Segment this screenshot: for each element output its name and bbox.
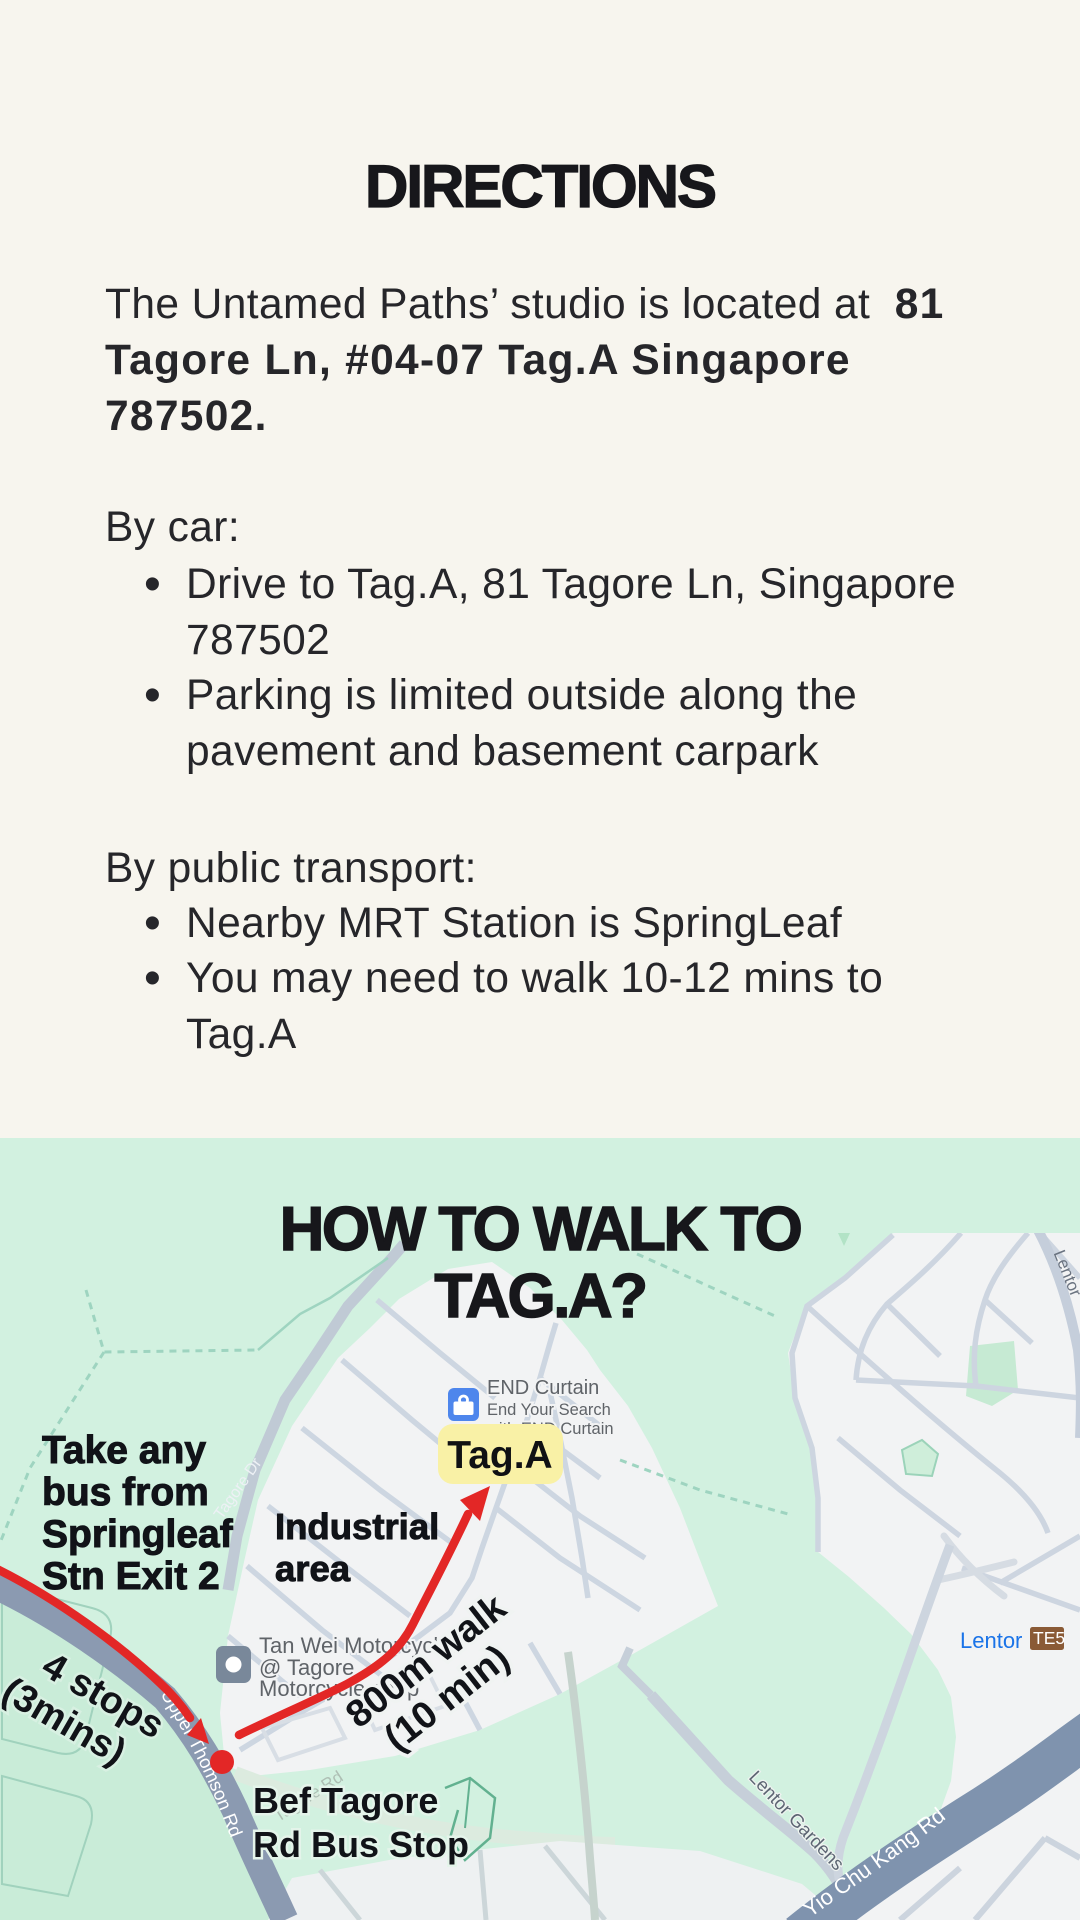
svg-text:Springleaf: Springleaf [42, 1513, 234, 1556]
svg-text:END Curtain: END Curtain [487, 1377, 599, 1399]
svg-text:End Your Search: End Your Search [487, 1401, 611, 1419]
svg-text:TAG.A?: TAG.A? [434, 1262, 645, 1331]
svg-text:bus from: bus from [42, 1471, 209, 1514]
svg-text:Stn Exit 2: Stn Exit 2 [42, 1555, 220, 1598]
svg-text:Bef Tagore: Bef Tagore [253, 1780, 438, 1821]
svg-text:Industrial: Industrial [275, 1506, 439, 1547]
svg-text:Take any: Take any [42, 1429, 206, 1472]
svg-text:Rd Bus Stop: Rd Bus Stop [253, 1824, 469, 1865]
svg-text:Tag.A: Tag.A [447, 1434, 552, 1477]
svg-text:area: area [275, 1548, 351, 1589]
svg-text:Lentor: Lentor [960, 1628, 1022, 1653]
svg-text:HOW TO WALK TO: HOW TO WALK TO [280, 1195, 801, 1264]
svg-text:TE5: TE5 [1033, 1628, 1065, 1648]
